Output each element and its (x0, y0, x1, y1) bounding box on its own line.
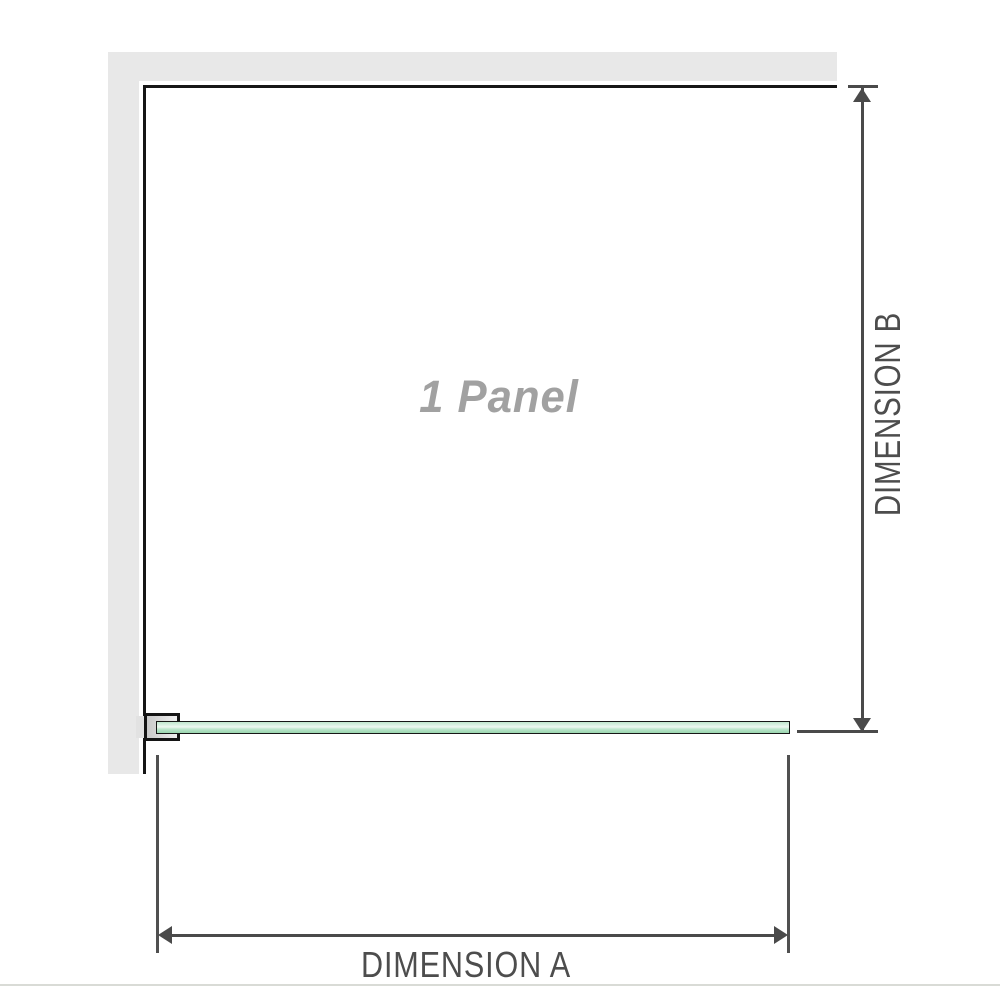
extension-line-left (156, 755, 159, 953)
wall-left (108, 52, 139, 774)
dimension-a-line (169, 934, 776, 937)
arrowhead-right-icon (774, 926, 788, 944)
bottom-divider-line (0, 984, 1000, 986)
wall-top-edge-line (143, 85, 837, 88)
arrowhead-left-icon (158, 926, 172, 944)
dimension-a-label: DIMENSION A (361, 944, 571, 986)
extension-line-right (787, 755, 790, 953)
panel-count-label: 1 Panel (383, 371, 616, 423)
dimension-b-label: DIMENSION B (867, 312, 909, 516)
diagram-canvas: 1 Panel DIMENSION B DIMENSION A (0, 0, 1000, 1000)
glass-panel (156, 721, 790, 734)
wall-left-edge-line (143, 85, 146, 774)
dimension-b-line (861, 88, 864, 732)
wall-top (108, 52, 837, 81)
arrowhead-down-icon (853, 718, 871, 732)
arrowhead-up-icon (853, 88, 871, 102)
